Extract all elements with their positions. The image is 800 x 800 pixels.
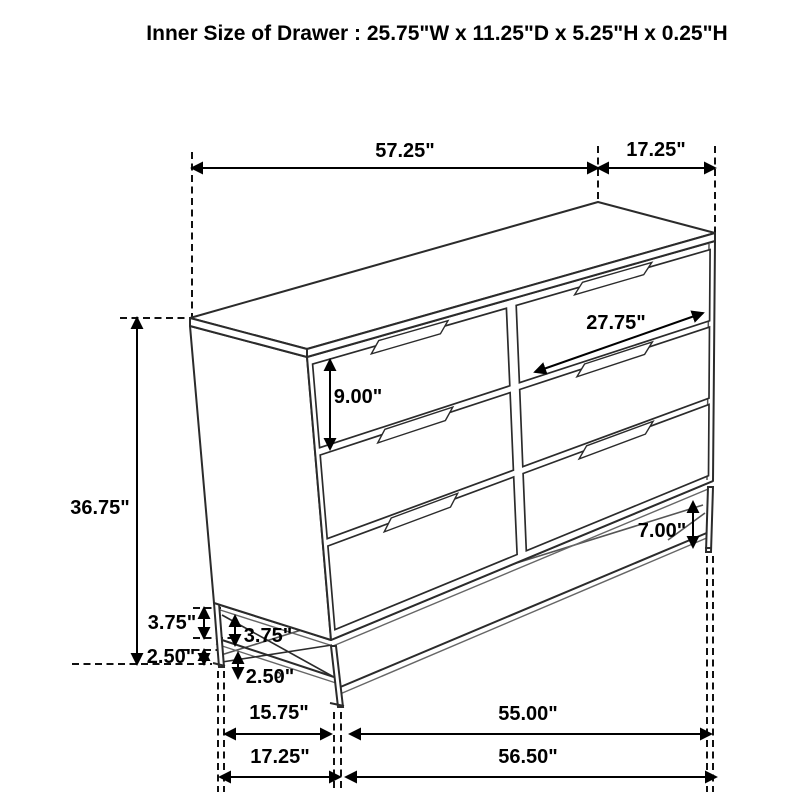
dim-base-depth-outer-label: 17.25" xyxy=(250,747,310,767)
leg-front-right xyxy=(706,487,713,552)
page-title: Inner Size of Drawer : 25.75"W x 11.25"D… xyxy=(146,22,727,46)
dim-base-depth-inner-label: 15.75" xyxy=(249,703,309,723)
dim-overall-height-label: 36.75" xyxy=(70,498,130,518)
dim-base-width-outer-label: 56.50" xyxy=(498,747,558,767)
dimension-diagram-page: Inner Size of Drawer : 25.75"W x 11.25"D… xyxy=(0,0,800,800)
dim-leg-height-label: 7.00" xyxy=(638,521,686,541)
dim-rail-gap-rear-label: 3.75" xyxy=(148,613,196,633)
dim-drawer-height-label: 9.00" xyxy=(334,387,382,407)
dim-base-width-inner-label: 55.00" xyxy=(498,704,558,724)
leg-back-left xyxy=(214,603,224,667)
dim-top-depth-label: 17.25" xyxy=(626,140,686,160)
dresser-diagram xyxy=(0,0,800,800)
dim-top-width-label: 57.25" xyxy=(375,141,435,161)
dim-drawer-width-label: 27.75" xyxy=(586,313,646,333)
dim-floor-clearance-rear-label: 2.50" xyxy=(147,647,195,667)
dim-rail-gap-front-label: 3.75" xyxy=(244,626,292,646)
dim-floor-clearance-front-label: 2.50" xyxy=(246,667,294,687)
